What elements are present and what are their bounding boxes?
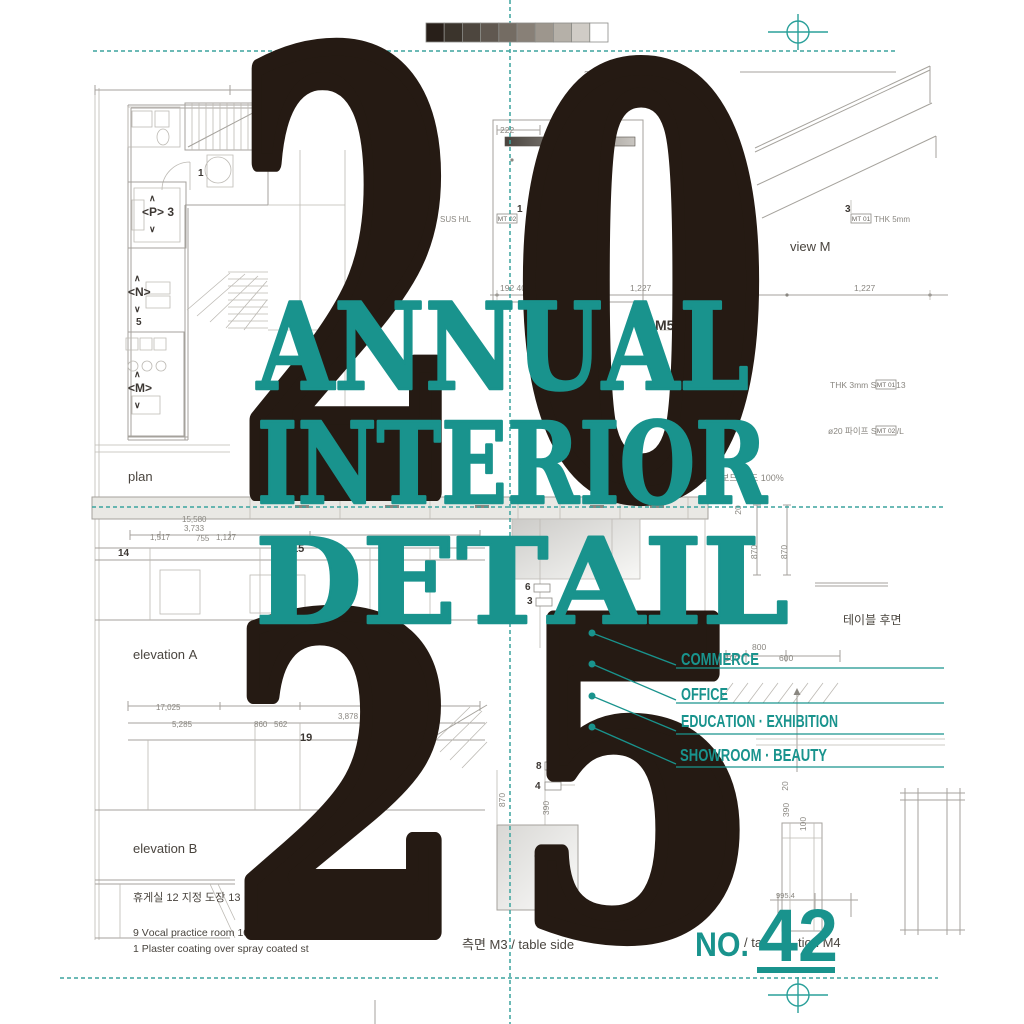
plan-label: plan [128,469,153,484]
dim-870-v3: 870 [497,793,507,807]
grayscale-calibration-bar [426,23,608,42]
cover-title: ANNUAL INTERIOR DETAIL [255,277,789,651]
elevation-b-label: elevation B [133,841,197,856]
category-education-exhibition: EDUCATION · EXHIBITION [681,711,838,731]
category-commerce: COMMERCE [681,649,759,669]
caret-down-icon: ∨ [134,304,141,314]
tag-mt02: MT 02 [877,428,896,435]
issue-number-value: 42 [758,894,838,977]
title-line-annual: ANNUAL [256,277,749,418]
dim-1227-right: 1,227 [854,283,876,293]
title-line-detail: DETAIL [255,512,789,651]
colorbar-swatch [499,23,517,42]
caret-up-icon: ∧ [134,273,141,283]
colorbar-swatch [517,23,535,42]
caret-down-icon: ∨ [149,224,156,234]
book-cover: plan elevation A elevation B view M 테이블 … [0,0,1024,1024]
table-rear-label: 테이블 후면 [843,613,902,627]
view-m-label: view M [790,239,830,254]
colorbar-swatch [462,23,480,42]
callout-3-topright: 3 [845,204,851,215]
plan-marker-n: <N> [128,285,151,299]
cover-canvas: plan elevation A elevation B view M 테이블 … [0,0,1024,1024]
colorbar-swatch [426,23,444,42]
dim-3733: 3,733 [184,524,205,533]
plan-marker-m: <M> [128,381,152,395]
dim-755: 755 [196,534,210,543]
issue-no-label: NO. [695,926,749,964]
caret-down-icon: ∨ [134,400,141,410]
dim-17025: 17,025 [156,703,181,712]
category-showroom-beauty: SHOWROOM · BEAUTY [680,745,827,765]
dim-15580: 15,580 [182,515,207,524]
colorbar-swatch [535,23,553,42]
registration-mark-icon [768,977,828,1013]
elevation-a-label: elevation A [133,647,198,662]
category-office: OFFICE [681,684,728,704]
registration-mark-icon [768,14,828,50]
callout-14: 14 [118,548,130,559]
dim-390-v2: 390 [781,803,791,817]
dim-5285: 5,285 [172,720,193,729]
colorbar-swatch [481,23,499,42]
plan-marker-n-number: 5 [136,317,142,328]
issue-number-underline [757,967,835,973]
colorbar-swatch [590,23,608,42]
tag-mt01-b: MT 01 [852,216,871,223]
plan-marker-p: <P> 3 [142,205,174,219]
dim-100-v: 100 [798,817,808,831]
title-line-interior: INTERIOR [257,399,768,530]
dim-20-v2: 20 [780,781,790,791]
tag-mt01: MT 01 [877,382,896,389]
plan-room-number: 1 [198,168,204,179]
colorbar-swatch [553,23,571,42]
dim-600: 600 [779,653,793,663]
material-note-thk5: THK 5mm [874,215,910,224]
dim-1517: 1,517 [150,533,171,542]
colorbar-swatch [572,23,590,42]
caret-up-icon: ∧ [149,193,156,203]
caret-up-icon: ∧ [134,369,141,379]
colorbar-swatch [444,23,462,42]
